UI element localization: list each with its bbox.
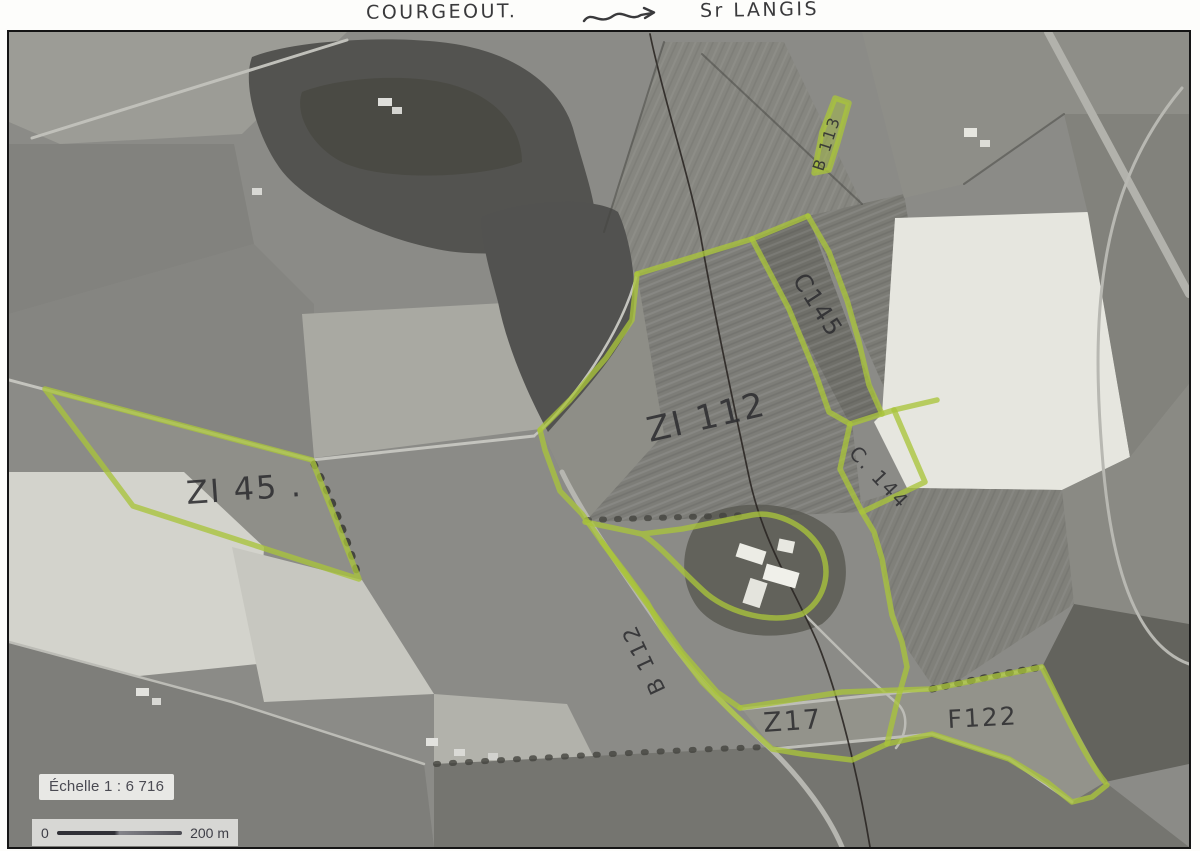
parcel-label-zi45: ZI 45 . xyxy=(185,466,304,512)
annotation-st-langis: Sr LANGIS xyxy=(700,0,819,22)
scale-box: Échelle 1 : 6 716 xyxy=(39,774,174,800)
arrow-doodle-icon xyxy=(580,6,666,30)
parcel-label-z17: Z17 xyxy=(762,704,823,739)
aerial-photo: ZI 45 . ZI 112 C145 C. 144 B 112 B 113 Z… xyxy=(7,30,1191,849)
annotation-courgeout: COURGEOUT. xyxy=(366,0,518,24)
parcel-label-f122: F122 xyxy=(947,701,1019,734)
scale-bar: 0 200 m xyxy=(32,819,238,846)
scale-end-label: 200 m xyxy=(190,825,229,841)
scale-start-label: 0 xyxy=(41,825,49,841)
scanned-map-page: COURGEOUT. Sr LANGIS xyxy=(0,0,1200,851)
scale-text: Échelle 1 : 6 716 xyxy=(49,778,164,795)
scale-bar-line xyxy=(57,831,182,835)
aerial-photo-canvas: ZI 45 . ZI 112 C145 C. 144 B 112 B 113 Z… xyxy=(9,32,1189,847)
